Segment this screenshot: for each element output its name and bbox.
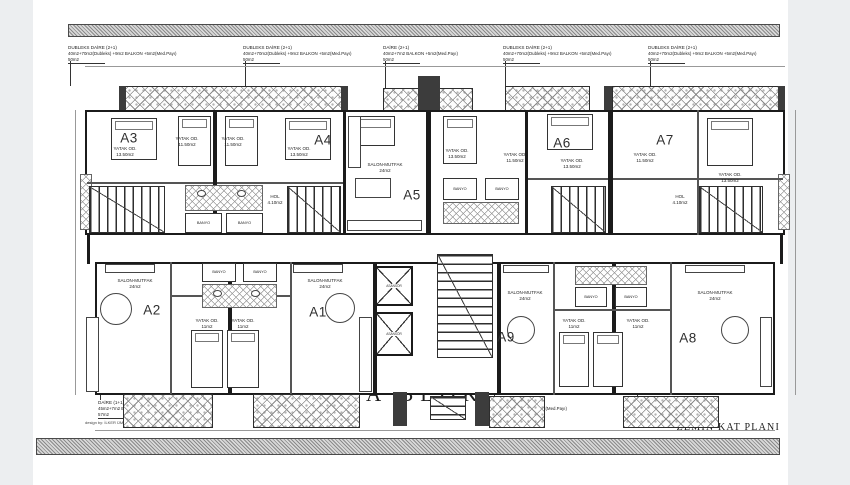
room-label: SALON-MUTFAK24m2	[507, 290, 542, 302]
duplex-stair	[551, 186, 606, 233]
sink	[197, 190, 206, 197]
unit-label-a1: A1	[309, 305, 327, 320]
dimension-line	[85, 66, 785, 67]
annotation-line: 50m2	[503, 57, 540, 64]
bathroom: BANYO	[202, 263, 236, 282]
room-label: YATAK OD.13.50m2	[287, 146, 310, 158]
bathroom: BANYO	[243, 263, 277, 282]
column	[119, 86, 126, 112]
bed	[593, 332, 623, 387]
sofa	[760, 317, 772, 387]
party-wall	[608, 110, 613, 235]
balcony-terrace	[612, 86, 780, 112]
sofa	[86, 317, 99, 392]
elevator-label: ASANSÖR	[385, 332, 403, 336]
room-label: YATAK OD.11m2	[562, 318, 585, 330]
wall	[553, 309, 670, 311]
duplex-stair	[287, 186, 341, 233]
room-label: HOL4.10m2	[672, 194, 687, 206]
balcony-terrace	[489, 396, 545, 428]
room-label: YATAK OD.11m2	[195, 318, 218, 330]
core-wall	[497, 262, 501, 395]
room-label: YATAK OD.11.50m2	[175, 136, 198, 148]
kitchen-counter	[685, 265, 745, 273]
room-label: BANYO	[212, 270, 225, 275]
room-label: BANYO	[495, 187, 508, 192]
bottom-hatch-bar	[36, 438, 780, 455]
room-label: YATAK OD.11.50m2	[221, 136, 244, 148]
bathroom: BANYO	[575, 287, 607, 307]
unit-label-a7: A7	[656, 133, 674, 148]
kitchen-counter	[105, 264, 155, 273]
annotation-duplex-2: DUBLEKS DAİRE (2+1) 40m2+70m2(Dubleks) +…	[243, 45, 351, 64]
room-label: BANYO	[584, 295, 597, 300]
wall	[87, 233, 90, 264]
dimension-line	[95, 430, 775, 431]
bathroom: BANYO	[443, 178, 477, 200]
bathroom: BANYO	[226, 213, 263, 233]
balcony-terrace	[125, 86, 343, 112]
floor-plan: ASANSÖR ASANSÖR BANYO BANYO BANYO BANYO …	[85, 74, 785, 434]
unit-label-a8: A8	[679, 331, 697, 346]
annotation-duplex-3: DUBLEKS DAİRE (2+1) 40m2+70m2(Dubleks) +…	[503, 45, 611, 64]
room-label: HOL4.10m2	[267, 194, 282, 206]
dining-table	[355, 178, 391, 198]
column	[475, 392, 489, 426]
room-label: YATAK OD.11m2	[231, 318, 254, 330]
elevator-shaft: ASANSÖR	[375, 312, 413, 356]
column	[604, 86, 612, 112]
room-label: BANYO	[624, 295, 637, 300]
side-terrace	[778, 174, 790, 230]
room-label: YATAK OD.11.50m2	[503, 152, 526, 164]
unit-label-a5: A5	[403, 188, 421, 203]
leader-line	[70, 61, 71, 86]
wall	[670, 262, 672, 395]
bed	[707, 118, 753, 166]
column	[393, 392, 407, 426]
room-label: YATAK OD.11.50m2	[633, 152, 656, 164]
drawing-sheet: DUBLEKS DAİRE (2+1) 40m2+70m2(Dubleks) +…	[33, 0, 788, 485]
room-label: YATAK OD.13.50m2	[113, 146, 136, 158]
room-label: YATAK OD.13.50m2	[560, 158, 583, 170]
room-label: YATAK OD.11m2	[626, 318, 649, 330]
wall	[217, 182, 343, 184]
annotation-duplex-1: DUBLEKS DAİRE (2+1) 40m2+70m2(Dubleks) +…	[68, 45, 176, 64]
wall	[343, 110, 346, 235]
wall	[528, 178, 608, 180]
wall	[613, 178, 697, 180]
column	[341, 86, 348, 112]
annotation-line: 50m2	[68, 57, 105, 64]
unit-label-a3: A3	[120, 131, 138, 146]
bed	[559, 332, 589, 387]
kitchen-counter	[293, 264, 343, 273]
dining-table	[325, 293, 355, 323]
column	[778, 86, 785, 112]
shaft-column	[418, 76, 440, 112]
elevator-shaft: ASANSÖR	[375, 266, 413, 306]
wall	[553, 262, 555, 395]
bathroom: BANYO	[615, 287, 647, 307]
balcony-terrace	[123, 394, 213, 428]
bathroom: BANYO	[485, 178, 519, 200]
room-label: SALON-MUTFAK24m2	[307, 278, 342, 290]
entry-steps	[430, 396, 466, 420]
main-stair	[437, 254, 493, 358]
balcony-terrace	[253, 394, 360, 428]
elevator-label: ASANSÖR	[385, 284, 403, 288]
balcony-terrace	[505, 86, 590, 112]
party-wall	[426, 110, 431, 235]
wall	[525, 110, 528, 235]
unit-label-a9: A9	[497, 330, 515, 345]
dimension-line	[75, 110, 76, 395]
bathroom-floor	[575, 266, 647, 285]
dining-table	[100, 293, 132, 325]
sofa	[359, 317, 372, 392]
bathroom-floor	[185, 185, 263, 211]
room-label: BANYO	[453, 187, 466, 192]
sink	[237, 190, 246, 197]
room-label: BANYO	[238, 221, 251, 226]
wall	[780, 233, 783, 264]
bed	[227, 330, 259, 388]
kitchen-counter	[503, 265, 549, 273]
screenshot-root: { "sheet": { "block_title": "A BLOK", "p…	[0, 0, 850, 485]
bed	[191, 330, 223, 388]
room-label: SALON-MUTFAK24m2	[117, 278, 152, 290]
bathroom: BANYO	[185, 213, 222, 233]
top-hatch-bar	[68, 24, 780, 37]
annotation-line: 50m2	[243, 57, 280, 64]
wall	[290, 262, 292, 395]
room-label: YATAK OD.13.50m2	[718, 172, 741, 184]
kitchen-counter	[347, 220, 422, 231]
unit-label-a4: A4	[314, 133, 332, 148]
sofa	[348, 116, 361, 168]
bathroom-floor	[202, 284, 277, 308]
room-label: BANYO	[197, 221, 210, 226]
annotation-duplex-4: DUBLEKS DAİRE (2+1) 40m2+70m2(Dubleks) +…	[648, 45, 756, 64]
bathroom-floor	[443, 202, 519, 224]
annotation-flat-2plus1: DAİRE (2+1) 40m2+7m2 BALKON +5m2(Med.Pay…	[383, 45, 458, 64]
dimension-line	[795, 110, 796, 395]
dining-table	[721, 316, 749, 344]
annotation-line: 50m2	[648, 57, 685, 64]
room-label: SALON-MUTFAK24m2	[367, 162, 402, 174]
room-label: YATAK OD.13.50m2	[445, 148, 468, 160]
duplex-stair	[89, 186, 165, 233]
duplex-stair	[699, 186, 763, 233]
balcony-terrace	[623, 396, 719, 428]
room-label: BANYO	[253, 270, 266, 275]
wall	[170, 262, 172, 395]
room-label: SALON-MUTFAK24m2	[697, 290, 732, 302]
sink	[251, 290, 260, 297]
sink	[213, 290, 222, 297]
wall	[87, 182, 213, 184]
annotation-line: 50m2	[383, 57, 420, 64]
unit-label-a6: A6	[553, 136, 571, 151]
unit-label-a2: A2	[143, 303, 161, 318]
